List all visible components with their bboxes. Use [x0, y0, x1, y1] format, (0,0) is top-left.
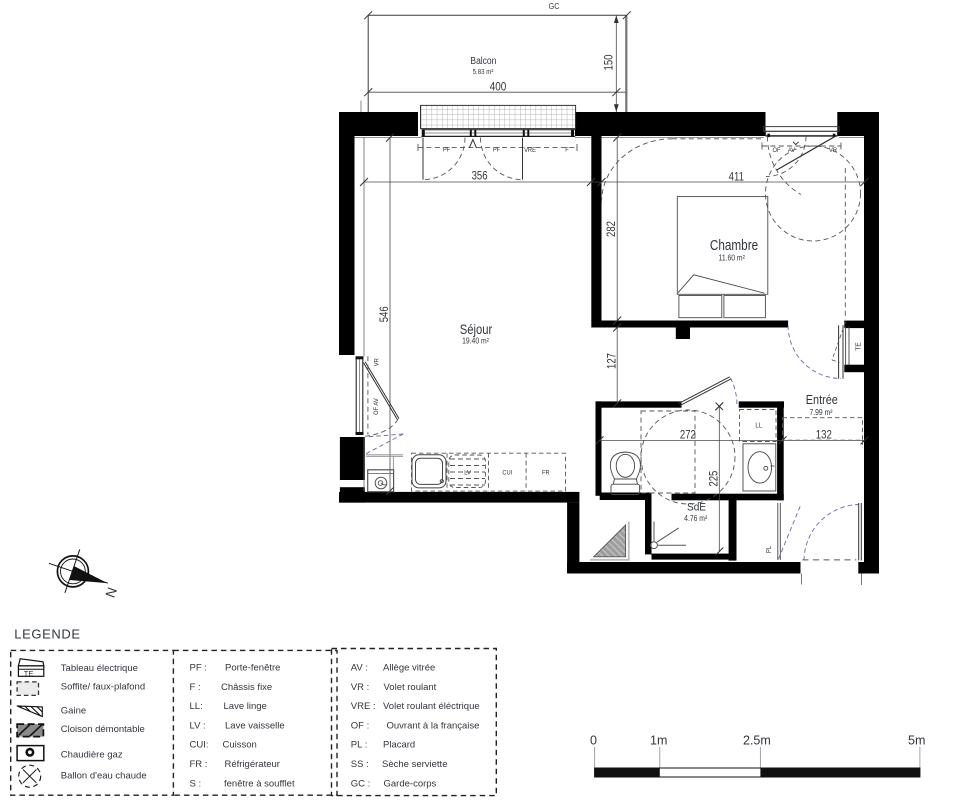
svg-text:TE: TE	[24, 669, 34, 678]
svg-text:AV :: AV :	[351, 663, 368, 674]
svg-text:Lave linge: Lave linge	[224, 701, 267, 712]
svg-text:S :: S :	[190, 778, 202, 789]
svg-text:Chaudière gaz: Chaudière gaz	[61, 750, 123, 761]
svg-text:225: 225	[707, 471, 720, 487]
svg-text:Cuisson: Cuisson	[223, 740, 257, 751]
svg-text:4.76 m²: 4.76 m²	[684, 513, 707, 523]
svg-text:1m: 1m	[650, 734, 667, 748]
svg-text:356: 356	[472, 170, 488, 183]
svg-text:Chambre: Chambre	[710, 237, 758, 253]
svg-text:Balcon: Balcon	[470, 56, 496, 67]
svg-text:132: 132	[816, 428, 832, 441]
svg-text:5m: 5m	[908, 734, 925, 748]
svg-text:Gaine: Gaine	[61, 706, 86, 717]
svg-text:GC: GC	[549, 1, 560, 11]
svg-text:LV: LV	[464, 469, 471, 477]
svg-text:Lave vaisselle: Lave vaisselle	[225, 720, 285, 731]
svg-text:CUI: CUI	[502, 469, 512, 477]
svg-text:CUI:: CUI:	[190, 740, 209, 751]
svg-text:Volet roulant: Volet roulant	[384, 682, 437, 693]
svg-text:2.5m: 2.5m	[743, 734, 771, 748]
svg-text:Porte-fenêtre: Porte-fenêtre	[225, 663, 280, 674]
svg-text:PF :: PF :	[190, 663, 207, 674]
svg-text:fenêtre à soufflet: fenêtre à soufflet	[224, 778, 295, 789]
svg-text:Allège vitrée: Allège vitrée	[383, 663, 435, 674]
svg-text:VR :: VR :	[351, 682, 369, 693]
svg-text:150: 150	[603, 54, 616, 70]
svg-text:VR: VR	[373, 358, 381, 366]
svg-text:272: 272	[680, 428, 696, 441]
svg-text:11.60 m²: 11.60 m²	[719, 253, 746, 263]
svg-text:LL:: LL:	[190, 701, 203, 712]
svg-text:GC :: GC :	[351, 778, 371, 789]
svg-text:Soffite/ faux-plafond: Soffite/ faux-plafond	[61, 682, 145, 693]
svg-text:N: N	[103, 585, 120, 599]
svg-text:OF: OF	[772, 147, 780, 155]
svg-text:OF :: OF :	[351, 720, 369, 731]
svg-text:Ballon d'eau chaude: Ballon d'eau chaude	[61, 771, 147, 782]
svg-text:127: 127	[606, 353, 619, 369]
svg-text:SdE: SdE	[687, 501, 706, 514]
svg-text:5.83 m²: 5.83 m²	[473, 69, 494, 77]
svg-text:PL: PL	[765, 546, 773, 554]
svg-text:Placard: Placard	[383, 740, 415, 751]
svg-text:TE: TE	[855, 342, 863, 350]
svg-text:Sèche serviette: Sèche serviette	[382, 759, 447, 770]
svg-text:LL: LL	[755, 422, 762, 430]
svg-text:VRE :: VRE :	[351, 701, 376, 712]
svg-text:Garde-corps: Garde-corps	[384, 778, 437, 789]
svg-text:F :: F :	[190, 682, 201, 693]
svg-text:546: 546	[378, 306, 391, 322]
svg-text:400: 400	[490, 81, 507, 94]
svg-text:Tableau électrique: Tableau électrique	[61, 663, 138, 674]
svg-text:7.99 m²: 7.99 m²	[809, 407, 832, 417]
svg-text:Ouvrant à la française: Ouvrant à la française	[387, 720, 480, 731]
svg-text:LV :: LV :	[190, 720, 206, 731]
svg-text:Réfrigérateur: Réfrigérateur	[225, 759, 280, 770]
svg-text:FR: FR	[542, 469, 550, 477]
svg-text:Cloison démontable: Cloison démontable	[61, 724, 145, 735]
svg-text:19.40 m²: 19.40 m²	[462, 336, 489, 346]
svg-text:Châssis fixe: Châssis fixe	[221, 682, 272, 693]
svg-text:FR :: FR :	[190, 759, 208, 770]
svg-text:PL :: PL :	[351, 740, 368, 751]
svg-text:411: 411	[729, 171, 744, 184]
svg-text:OF AV: OF AV	[372, 398, 380, 415]
svg-text:0: 0	[590, 734, 597, 748]
svg-text:Volet roulant éléctrique: Volet roulant éléctrique	[383, 701, 480, 712]
svg-text:SS :: SS :	[351, 759, 369, 770]
svg-text:LEGENDE: LEGENDE	[14, 627, 80, 642]
svg-text:Entrée: Entrée	[806, 392, 838, 407]
svg-text:282: 282	[605, 221, 618, 237]
